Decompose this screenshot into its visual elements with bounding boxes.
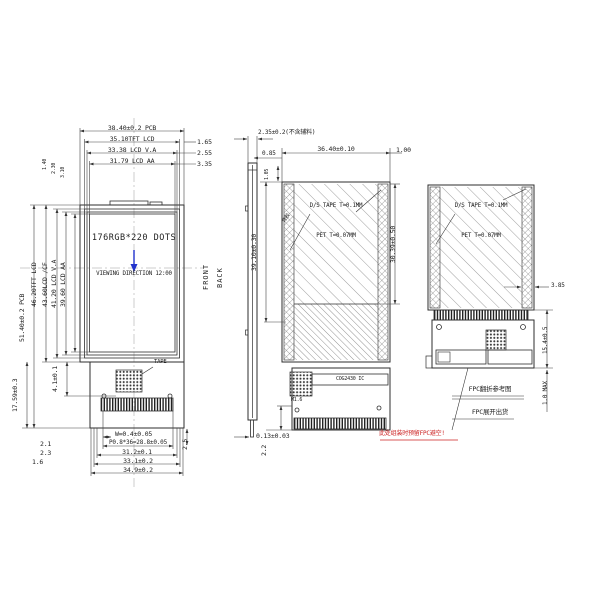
side-view	[246, 163, 258, 437]
note-fpc-ship: FPC展开出货	[448, 408, 532, 416]
dim-top-offset: 1.05	[264, 169, 270, 180]
dim-tape-region-height: 30.39±0.50	[389, 226, 397, 263]
ds-tape-label: D/S TAPE T=0.1MM	[294, 202, 378, 210]
driver-ic-label: COG2430 IC	[312, 376, 388, 382]
side-view-dimensions	[234, 136, 282, 437]
dim-349: 34.9±0.2	[92, 466, 184, 474]
engineering-drawing-page: 38.40±0.2 PCB 35.10TFT LCD 33.38 LCD V.A…	[0, 0, 600, 600]
dim-pin-height: 2.5	[181, 439, 189, 450]
pet-area	[294, 304, 378, 360]
viewing-direction-text: VIEWING DIRECTION 12:00	[82, 270, 186, 278]
fpc-pin-row	[434, 310, 528, 320]
fpc-pin-row	[294, 418, 386, 429]
front-side-label: FRONT	[202, 264, 210, 290]
dim-331: 33.1±0.2	[95, 457, 181, 465]
note-fpc-fold: FPC翻折参考图	[448, 385, 532, 393]
tape-hatch	[486, 330, 506, 350]
drawing-linework	[0, 0, 600, 600]
dim-height-va: 41.20 LCD V.A	[50, 260, 58, 308]
dim-thickness: 2.35±0.2(不含辅料)	[258, 129, 315, 136]
dim-fold-height: 15.4±0.5	[542, 327, 549, 354]
tape-label: TAPE	[154, 359, 166, 366]
dim-pin-pitch: P0.8*36=28.8±0.05	[98, 439, 178, 446]
dim-tape-height: 4.1±0.1	[51, 366, 59, 392]
dim-height-tft: 46.20TFT LCD	[30, 262, 38, 307]
fpc-flap	[488, 350, 532, 364]
dim-width-va: 33.38 LCD V.A	[92, 146, 172, 154]
dim-offset-va: 2.55	[197, 149, 212, 157]
dim-offset-23: 2.3	[40, 449, 51, 457]
dim-height-aa: 39.60 LCD AA	[59, 262, 67, 307]
dim-back-width: 36.40±0.10	[292, 145, 380, 153]
tape-hatch	[290, 372, 312, 396]
dim-offset-aa: 3.35	[197, 160, 212, 168]
dim-corner-c: 3.10	[60, 167, 66, 178]
dim-height-cf: 43.60LCD /CF	[41, 262, 49, 307]
ds-tape-label: D/S TAPE T=0.1MM	[440, 202, 522, 210]
dim-edge-width: 3.85	[551, 282, 565, 289]
viewing-direction-arrow	[131, 250, 138, 272]
back-side-label: BACK	[216, 267, 224, 288]
dim-fpc-thickness: 0.13±0.03	[256, 432, 289, 440]
pet-label: PET T=0.07MM	[440, 232, 522, 240]
dim-back-edge: 1.00	[396, 146, 411, 154]
dim-bottom-offset: 2.2	[260, 445, 268, 456]
dim-offset-16: 1.6	[32, 458, 43, 466]
dim-fold-gap: 1.0 MAX	[542, 381, 549, 405]
dim-height-pcb: 51.40±0.2 PCB	[18, 294, 26, 342]
back-view-unfolded	[282, 182, 390, 430]
pet-label: PET T=0.07MM	[294, 232, 378, 240]
dim-312: 31.2±0.1	[97, 448, 177, 456]
fpc-clearance-warning: 此处组装时预留FPC避空!	[379, 430, 445, 437]
tape-hatch	[116, 370, 142, 392]
dim-width-aa: 31.79 LCD AA	[92, 157, 172, 165]
dim-corner-b: 2.30	[51, 163, 57, 174]
dim-offset-tft: 1.65	[197, 138, 212, 146]
hole-label: M1.6	[291, 397, 302, 403]
dim-back-height: 39.10±0.30	[250, 234, 258, 271]
fpc-pin-row	[101, 398, 173, 411]
dim-width-pcb: 38.40±0.2 PCB	[92, 124, 172, 132]
dim-glass: 0.85	[262, 150, 276, 157]
dim-corner-a: 1.40	[42, 159, 48, 170]
dim-offset-21: 2.1	[40, 440, 51, 448]
display-resolution-text: 176RGB*220 DOTS	[82, 233, 186, 243]
dim-fpc-height: 17.59±0.3	[11, 379, 19, 412]
dim-width-tft: 35.10TFT LCD	[92, 135, 172, 143]
dim-pin-width: W=0.4±0.05	[115, 430, 152, 438]
back-view-folded	[426, 185, 534, 430]
